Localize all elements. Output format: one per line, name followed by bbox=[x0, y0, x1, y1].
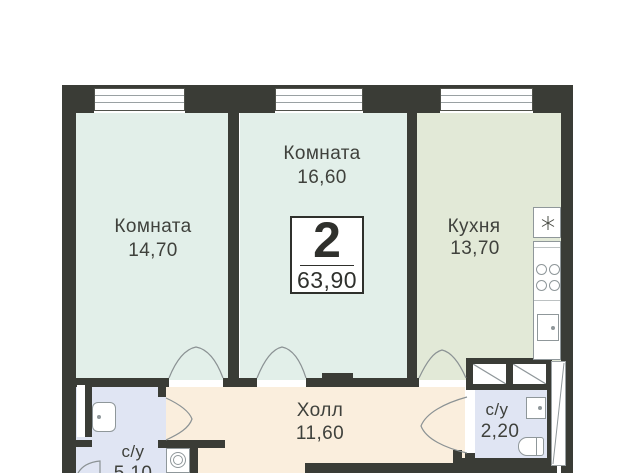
floor-plan: 2 63,90 Комната 14,70 Комната 16,60 Кухн… bbox=[0, 0, 640, 473]
bathroom-right-area: 2,20 bbox=[481, 421, 520, 443]
area-badge: 2 63,90 bbox=[290, 216, 364, 294]
door-arc-bathroom-left bbox=[166, 398, 192, 440]
door-arc-bathroom-right bbox=[421, 397, 467, 453]
total-area: 63,90 bbox=[297, 268, 357, 292]
bathroom-left-area: 5,10 bbox=[114, 463, 153, 473]
door-arc-partial-bottom bbox=[78, 461, 100, 473]
kitchen-area: 13,70 bbox=[450, 238, 500, 260]
bathroom-left-label: с/у bbox=[122, 442, 145, 462]
hall-label: Холл bbox=[297, 400, 343, 422]
rooms-count: 2 bbox=[313, 218, 341, 262]
hall-area: 11,60 bbox=[296, 423, 344, 445]
door-arc-room-2 bbox=[257, 347, 306, 378]
room-1-label: Комната bbox=[114, 216, 191, 238]
kitchen-label: Кухня bbox=[448, 216, 501, 238]
bathroom-right-label: с/у bbox=[486, 400, 509, 420]
room-2-label: Комната bbox=[283, 143, 360, 165]
badge-separator bbox=[300, 265, 354, 266]
door-arc-room-1 bbox=[169, 347, 223, 378]
entrance-door-icon bbox=[551, 361, 566, 466]
door-arc-kitchen bbox=[419, 350, 466, 378]
room-1-area: 14,70 bbox=[128, 240, 178, 262]
room-2-area: 16,60 bbox=[297, 167, 347, 189]
